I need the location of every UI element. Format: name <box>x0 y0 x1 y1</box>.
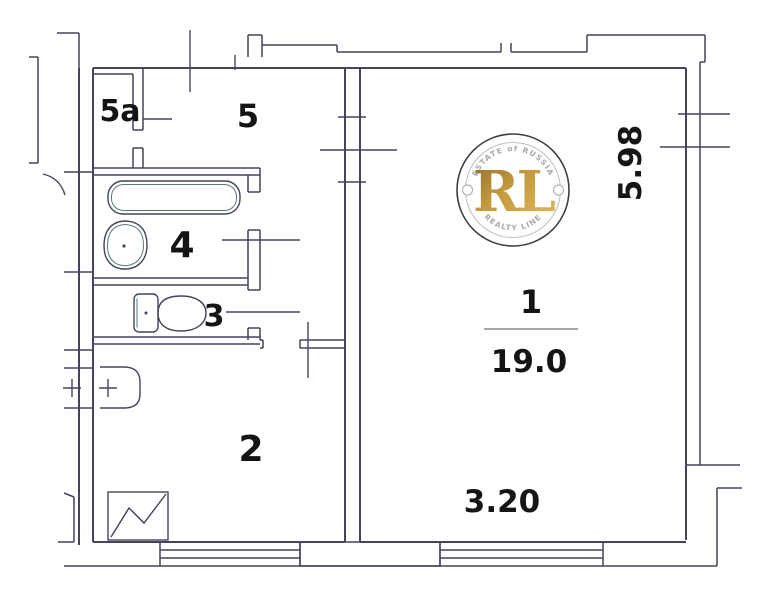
room-5-label: 5 <box>237 97 259 135</box>
left-lower-stub-wall <box>58 493 74 542</box>
partition-joint-ticks <box>320 117 397 182</box>
room-5a-label: 5a <box>99 94 140 129</box>
room-2-label: 2 <box>238 429 263 470</box>
right-ledge-wall <box>686 465 742 566</box>
room1-height-dimension: 5.98 <box>613 125 649 202</box>
kitchen-top-wall <box>93 337 345 348</box>
watermark-monogram: RL <box>473 159 556 225</box>
room-1-area-label: 19.0 <box>491 344 568 380</box>
kitchen-window <box>160 542 300 566</box>
bathtub-icon <box>108 181 240 214</box>
room1-partition-wall <box>345 68 360 542</box>
window-pier <box>300 542 440 566</box>
bath-block-right-wall <box>248 168 260 340</box>
kitchen-sink-icon <box>99 367 140 408</box>
stairwell-door-arc <box>43 174 65 195</box>
floor-plan: 5a 5 4 3 2 1 19.0 3.20 5.98 ESTATE of RU… <box>0 0 773 600</box>
bath-wc-divider-wall <box>93 278 248 285</box>
windows <box>160 542 603 566</box>
room-3-label: 3 <box>204 299 225 334</box>
room1-window <box>440 542 603 566</box>
top-wall-joint-ticks <box>190 30 235 92</box>
top-outer-wall <box>248 35 705 62</box>
floor-plan-drawing: 5a 5 4 3 2 1 19.0 3.20 5.98 ESTATE of RU… <box>0 0 773 600</box>
room-1-label: 1 <box>520 283 542 321</box>
watermark-left-dot <box>463 185 473 195</box>
watermark-logo: ESTATE of RUSSIA REALTY LINE RL <box>457 134 569 246</box>
watermark-right-dot <box>554 185 564 195</box>
stairwell-wall <box>29 33 79 163</box>
bath-block-top-wall <box>93 168 260 175</box>
interior-walls <box>63 68 397 542</box>
toilet-icon <box>134 294 206 332</box>
stove-icon <box>108 492 168 540</box>
room1-width-dimension: 3.20 <box>464 484 541 520</box>
room-4-label: 4 <box>169 225 194 266</box>
washbasin-icon <box>104 221 147 269</box>
right-wall-joint-ticks <box>660 114 730 147</box>
